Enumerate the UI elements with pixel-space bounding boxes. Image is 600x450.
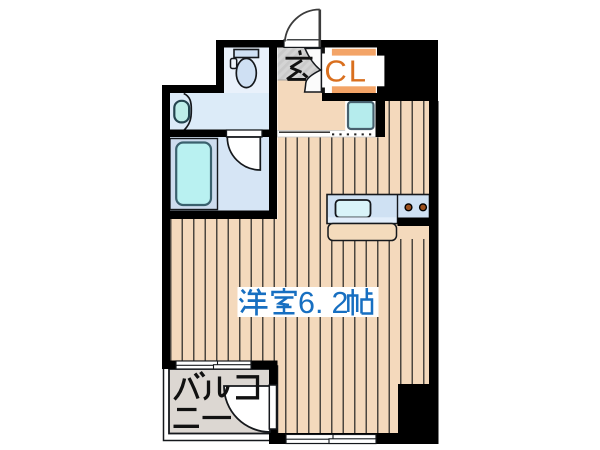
svg-text:2: 2: [332, 286, 349, 320]
svg-text:6.: 6.: [298, 286, 323, 320]
svg-text:CL: CL: [324, 53, 368, 88]
